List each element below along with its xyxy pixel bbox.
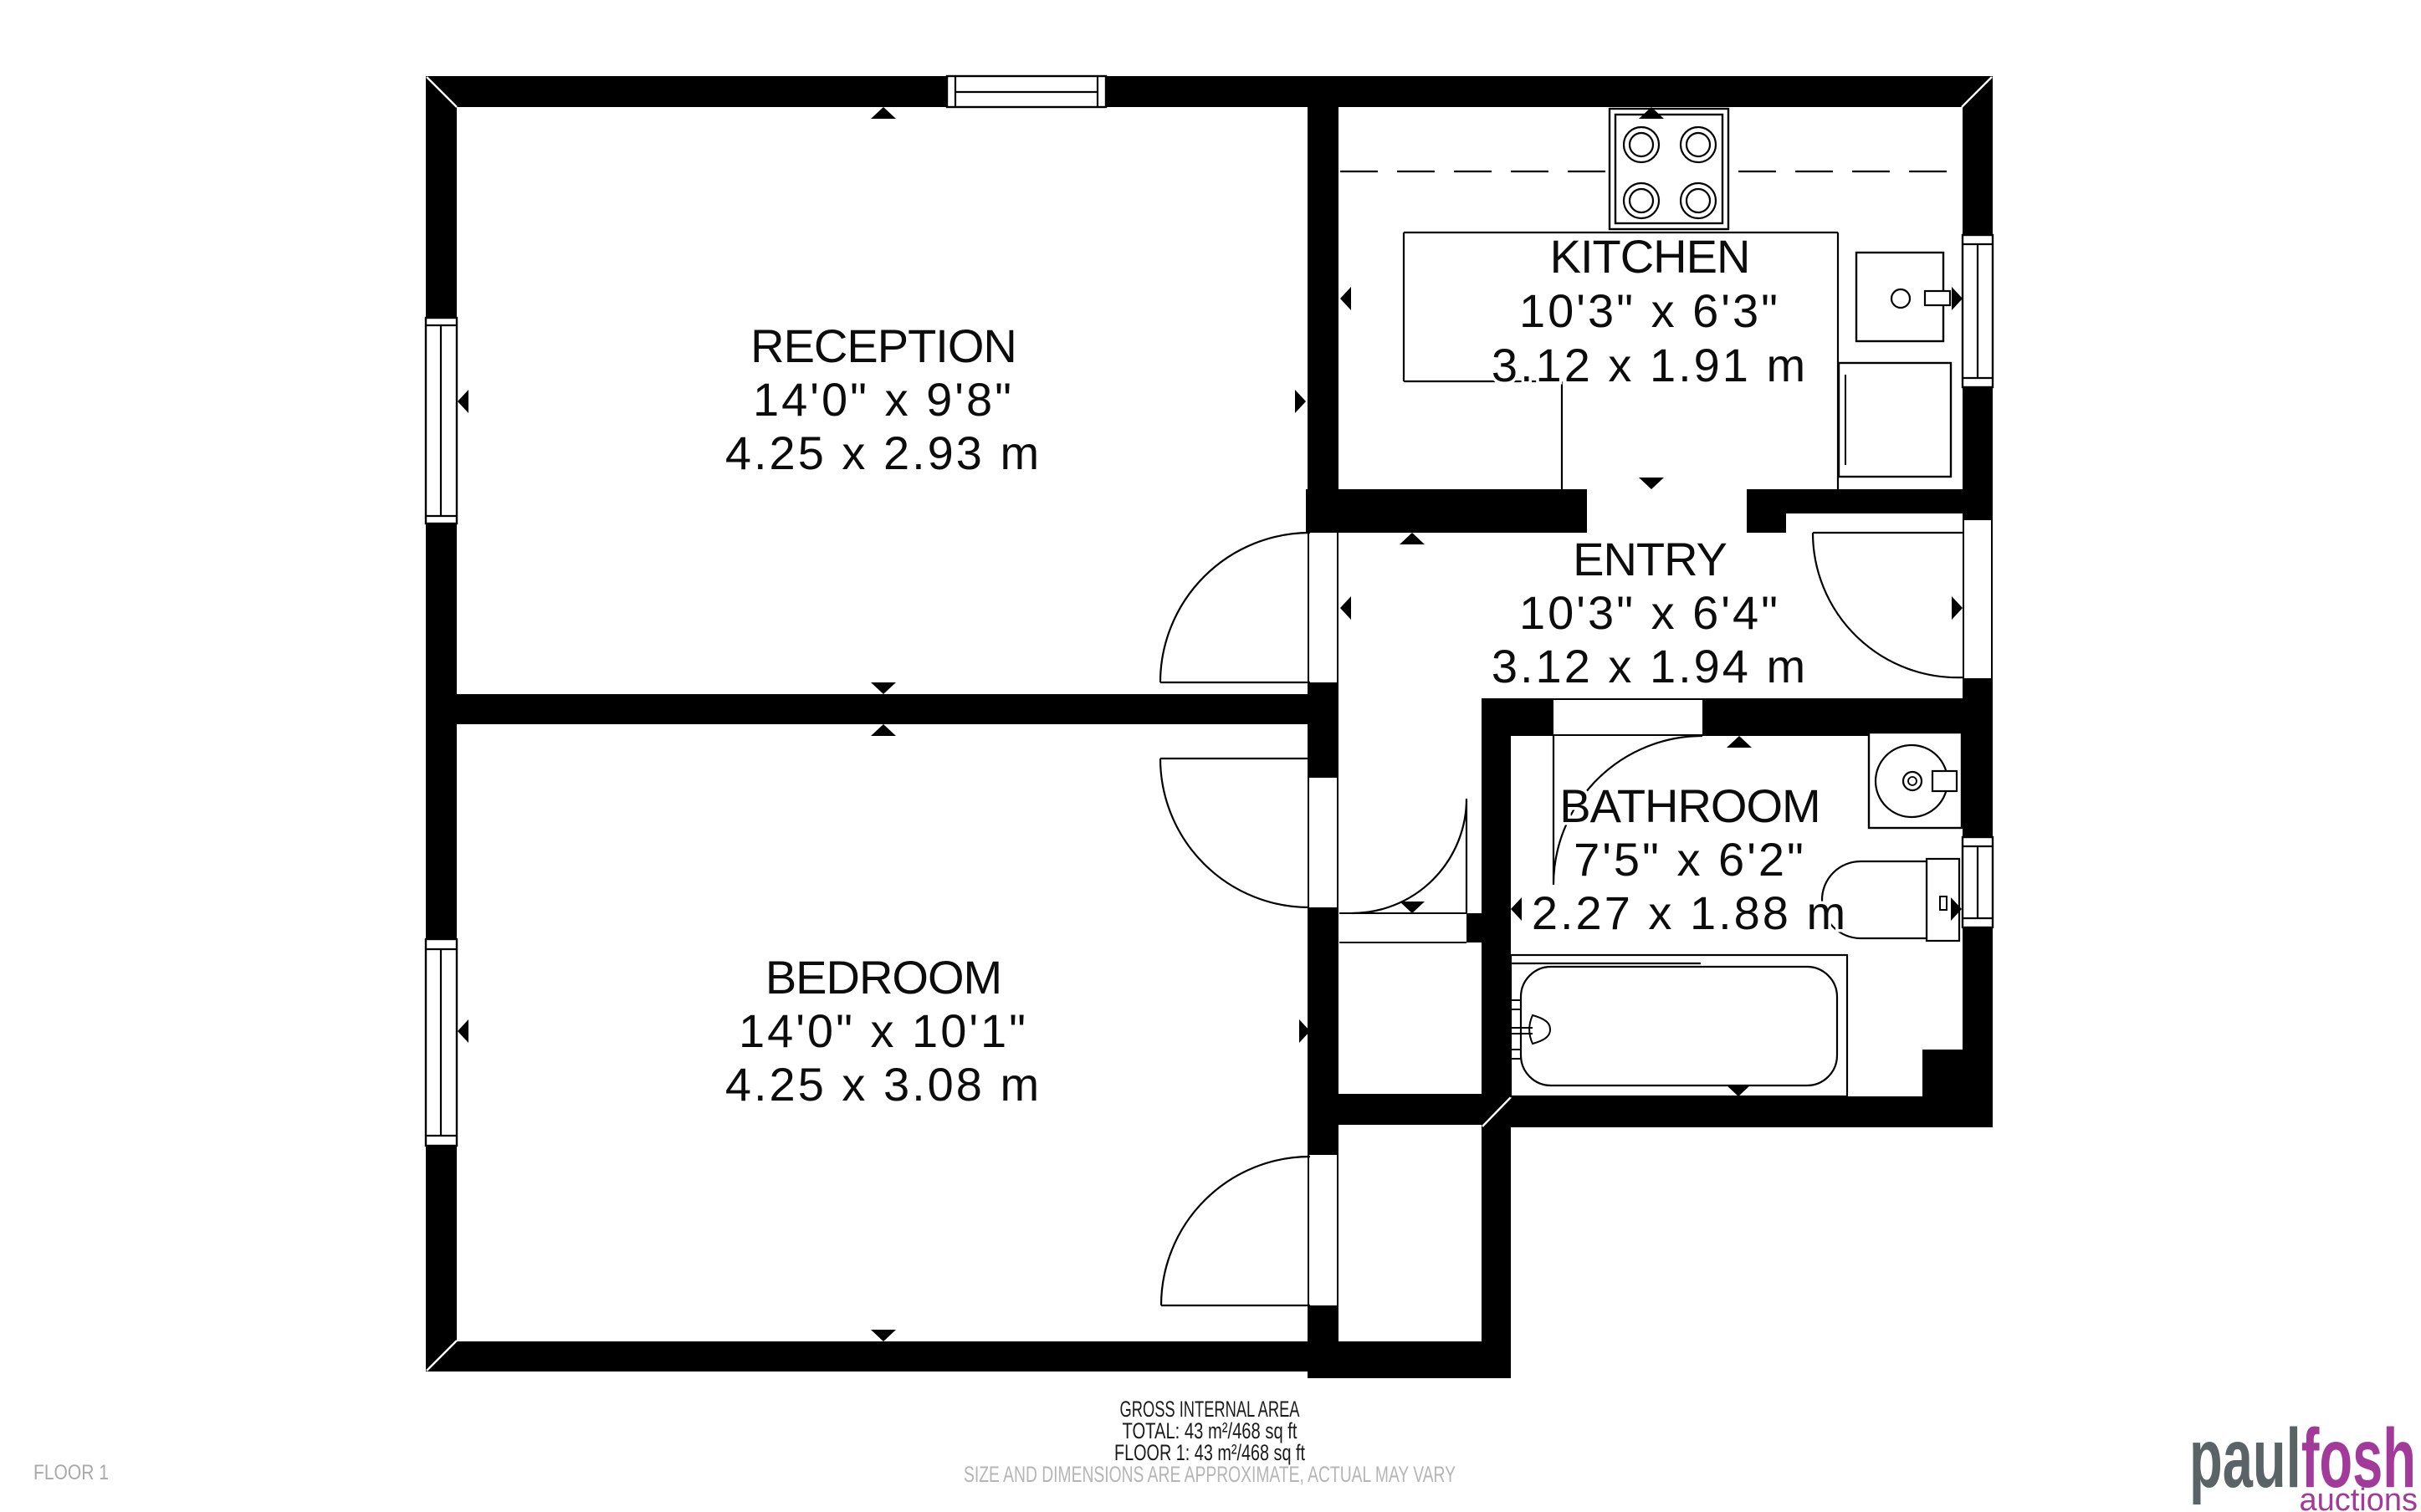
svg-text:FLOOR 1: FLOOR 1 (33, 1461, 109, 1484)
svg-text:10'3" x 6'3": 10'3" x 6'3" (1519, 284, 1780, 337)
svg-text:KITCHEN: KITCHEN (1550, 230, 1750, 283)
svg-text:4.25 x 2.93 m: 4.25 x 2.93 m (725, 427, 1042, 479)
svg-text:3.12 x 1.91 m: 3.12 x 1.91 m (1492, 339, 1808, 391)
svg-text:BATHROOM: BATHROOM (1559, 779, 1820, 832)
svg-text:auctions: auctions (2299, 1483, 2418, 1512)
svg-text:RECEPTION: RECEPTION (750, 319, 1016, 372)
svg-text:10'3" x 6'4": 10'3" x 6'4" (1519, 586, 1780, 639)
svg-text:4.25 x 3.08 m: 4.25 x 3.08 m (725, 1058, 1042, 1111)
svg-text:BEDROOM: BEDROOM (765, 951, 1001, 1004)
svg-text:7'5" x 6'2": 7'5" x 6'2" (1574, 833, 1806, 886)
svg-text:SIZE AND DIMENSIONS ARE APPROX: SIZE AND DIMENSIONS ARE APPROXIMATE, ACT… (964, 1462, 1456, 1487)
svg-text:ENTRY: ENTRY (1573, 533, 1727, 585)
svg-text:2.27 x 1.88 m: 2.27 x 1.88 m (1532, 886, 1848, 939)
svg-text:3.12 x 1.94 m: 3.12 x 1.94 m (1492, 640, 1808, 692)
svg-text:14'0" x 10'1": 14'0" x 10'1" (739, 1004, 1028, 1057)
svg-text:14'0" x 9'8": 14'0" x 9'8" (753, 373, 1014, 426)
